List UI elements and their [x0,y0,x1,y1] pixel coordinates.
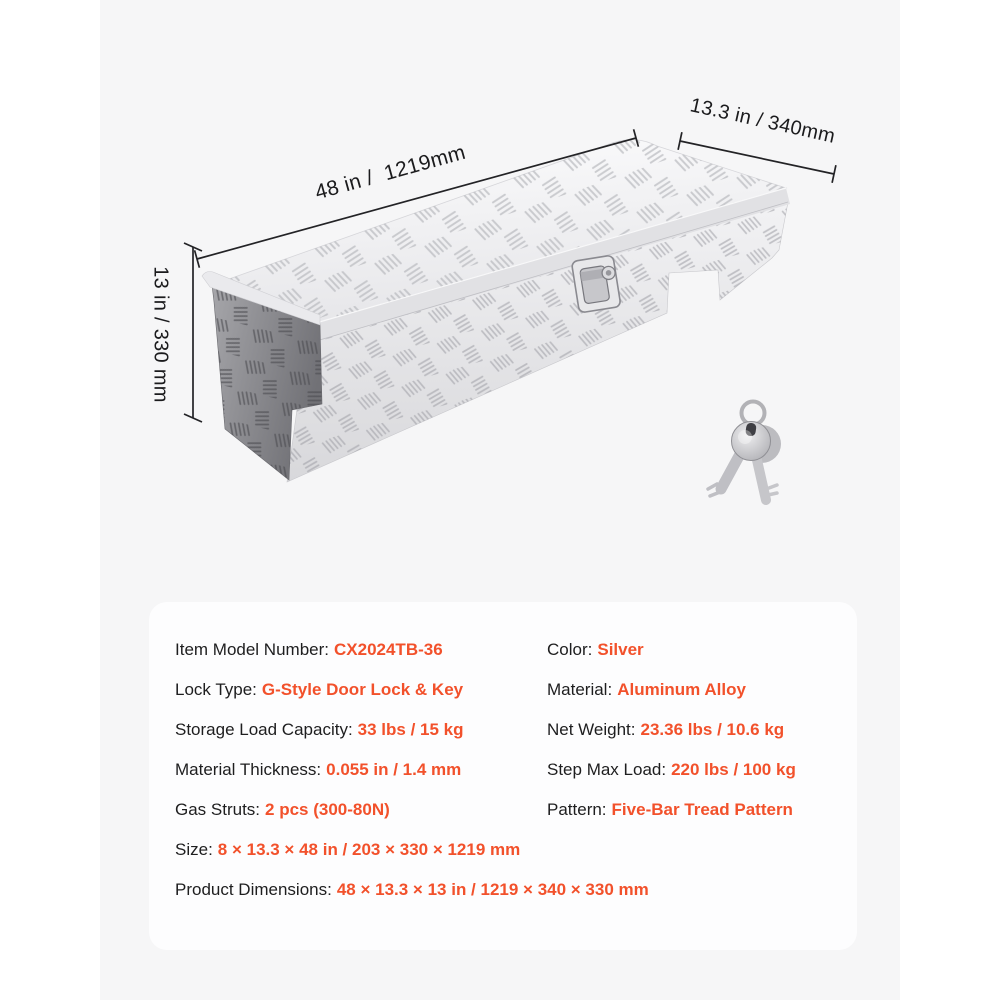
spec-pattern: Pattern:Five-Bar Tread Pattern [547,800,837,820]
spec-value: 8 × 13.3 × 48 in / 203 × 330 × 1219 mm [218,840,520,859]
spec-label: Storage Load Capacity: [175,720,353,739]
keys-icon [708,402,781,501]
height-dimension-label: 13 in / 330 mm [149,232,172,438]
spec-material-thickness: Material Thickness:0.055 in / 1.4 mm [175,760,547,780]
spec-label: Material: [547,680,612,699]
latch-icon [571,255,621,313]
spec-value: 2 pcs (300-80N) [265,800,390,819]
spec-size: Size:8 × 13.3 × 48 in / 203 × 330 × 1219… [175,840,837,860]
spec-value: G-Style Door Lock & Key [262,680,463,699]
spec-row: Material Thickness:0.055 in / 1.4 mm Ste… [175,750,837,790]
spec-color: Color:Silver [547,640,837,660]
spec-label: Product Dimensions: [175,880,332,899]
spec-label: Size: [175,840,213,859]
spec-row: Lock Type:G-Style Door Lock & Key Materi… [175,670,837,710]
spec-material: Material:Aluminum Alloy [547,680,837,700]
spec-label: Lock Type: [175,680,257,699]
spec-value: 48 × 13.3 × 13 in / 1219 × 340 × 330 mm [337,880,649,899]
dimension-line-height [184,243,202,422]
spec-value: 220 lbs / 100 kg [671,760,796,779]
spec-row: Product Dimensions:48 × 13.3 × 13 in / 1… [175,870,837,910]
spec-gas-struts: Gas Struts:2 pcs (300-80N) [175,800,547,820]
spec-storage-load-capacity: Storage Load Capacity:33 lbs / 15 kg [175,720,547,740]
spec-lock-type: Lock Type:G-Style Door Lock & Key [175,680,547,700]
spec-label: Color: [547,640,592,659]
spec-net-weight: Net Weight:23.36 lbs / 10.6 kg [547,720,837,740]
spec-value: CX2024TB-36 [334,640,443,659]
product-infographic-page: { "page": { "background": "#ffffff", "st… [0,0,1000,1000]
spec-row: Item Model Number:CX2024TB-36 Color:Silv… [175,630,837,670]
spec-label: Gas Struts: [175,800,260,819]
spec-value: Five-Bar Tread Pattern [612,800,793,819]
spec-row: Storage Load Capacity:33 lbs / 15 kg Net… [175,710,837,750]
spec-label: Item Model Number: [175,640,329,659]
spec-value: Silver [597,640,643,659]
spec-value: 33 lbs / 15 kg [358,720,464,739]
spec-label: Step Max Load: [547,760,666,779]
spec-value: 0.055 in / 1.4 mm [326,760,461,779]
spec-row: Gas Struts:2 pcs (300-80N) Pattern:Five-… [175,790,837,830]
spec-row: Size:8 × 13.3 × 48 in / 203 × 330 × 1219… [175,830,837,870]
spec-step-max-load: Step Max Load:220 lbs / 100 kg [547,760,837,780]
spec-label: Net Weight: [547,720,636,739]
spec-label: Pattern: [547,800,607,819]
spec-label: Material Thickness: [175,760,321,779]
spec-item-model-number: Item Model Number:CX2024TB-36 [175,640,547,660]
spec-value: 23.36 lbs / 10.6 kg [641,720,785,739]
spec-value: Aluminum Alloy [617,680,746,699]
spec-product-dimensions: Product Dimensions:48 × 13.3 × 13 in / 1… [175,880,837,900]
spec-panel: Item Model Number:CX2024TB-36 Color:Silv… [149,602,857,950]
